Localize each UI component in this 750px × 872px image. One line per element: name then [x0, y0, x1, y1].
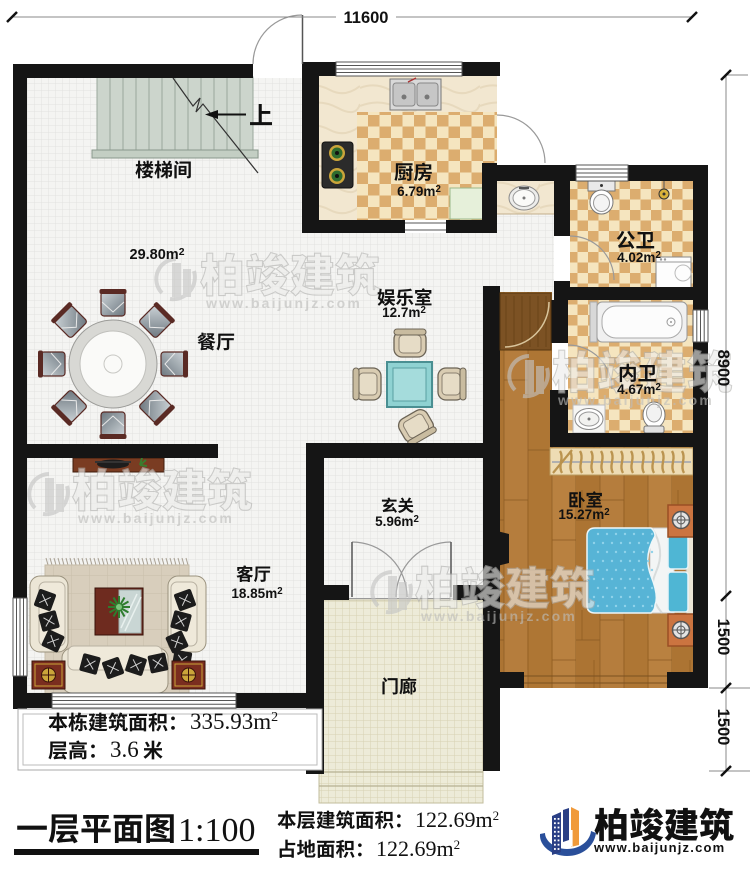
svg-text:3.6: 3.6 — [110, 737, 139, 762]
svg-text:1500: 1500 — [714, 709, 732, 746]
svg-text:8900: 8900 — [714, 350, 732, 387]
svg-text:12.7m2: 12.7m2 — [382, 305, 426, 320]
svg-text:4.02m2: 4.02m2 — [617, 250, 661, 265]
svg-text:www.baijunjz.com: www.baijunjz.com — [77, 510, 234, 526]
svg-text:6.79m2: 6.79m2 — [397, 184, 441, 199]
svg-text:335.93m2: 335.93m2 — [190, 709, 278, 734]
svg-text:122.69m2: 122.69m2 — [415, 807, 499, 832]
svg-text:www.baijunjz.com: www.baijunjz.com — [205, 295, 362, 311]
svg-text:www.baijunjz.com: www.baijunjz.com — [420, 608, 577, 624]
svg-text:1500: 1500 — [714, 619, 732, 656]
svg-text:1:100: 1:100 — [178, 812, 255, 849]
svg-text:11600: 11600 — [344, 9, 389, 27]
svg-text:18.85m2: 18.85m2 — [231, 586, 282, 601]
svg-text:15.27m2: 15.27m2 — [558, 507, 609, 522]
svg-text:29.80m2: 29.80m2 — [130, 247, 185, 263]
svg-text:www.baijunjz.com: www.baijunjz.com — [593, 840, 725, 855]
svg-text:5.96m2: 5.96m2 — [375, 514, 419, 529]
svg-text:4.67m2: 4.67m2 — [617, 382, 661, 397]
svg-text:122.69m2: 122.69m2 — [376, 836, 460, 861]
